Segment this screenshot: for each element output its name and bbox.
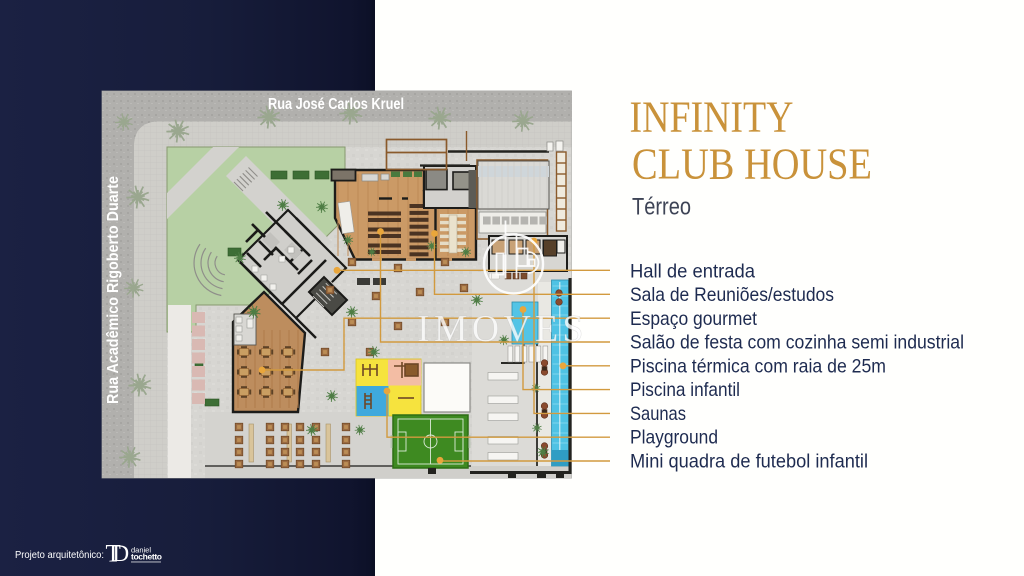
- svg-text:INFINITY: INFINITY: [630, 93, 794, 142]
- svg-text:tochetto: tochetto: [131, 552, 162, 562]
- svg-text:Piscina infantil: Piscina infantil: [630, 379, 740, 401]
- svg-text:Saunas: Saunas: [630, 403, 686, 425]
- svg-text:D: D: [113, 541, 130, 566]
- svg-text:Salão de festa com cozinha sem: Salão de festa com cozinha semi industri…: [630, 332, 964, 354]
- svg-text:Rua Acadêmico Rigoberto Duarte: Rua Acadêmico Rigoberto Duarte: [105, 176, 122, 404]
- svg-text:Piscina térmica com raia de 25: Piscina térmica com raia de 25m: [630, 355, 886, 377]
- svg-text:Hall de entrada: Hall de entrada: [630, 260, 755, 282]
- svg-text:Espaço gourmet: Espaço gourmet: [630, 308, 758, 330]
- svg-text:Playground: Playground: [630, 427, 718, 449]
- svg-text:Térreo: Térreo: [632, 194, 691, 221]
- svg-text:Sala de Reuniões/estudos: Sala de Reuniões/estudos: [630, 284, 834, 306]
- svg-text:CLUB HOUSE: CLUB HOUSE: [632, 140, 872, 189]
- svg-text:Rua José Carlos Kruel: Rua José Carlos Kruel: [268, 96, 404, 113]
- svg-text:Mini quadra de futebol infanti: Mini quadra de futebol infantil: [630, 450, 868, 472]
- svg-text:Projeto arquitetônico:: Projeto arquitetônico:: [15, 550, 104, 561]
